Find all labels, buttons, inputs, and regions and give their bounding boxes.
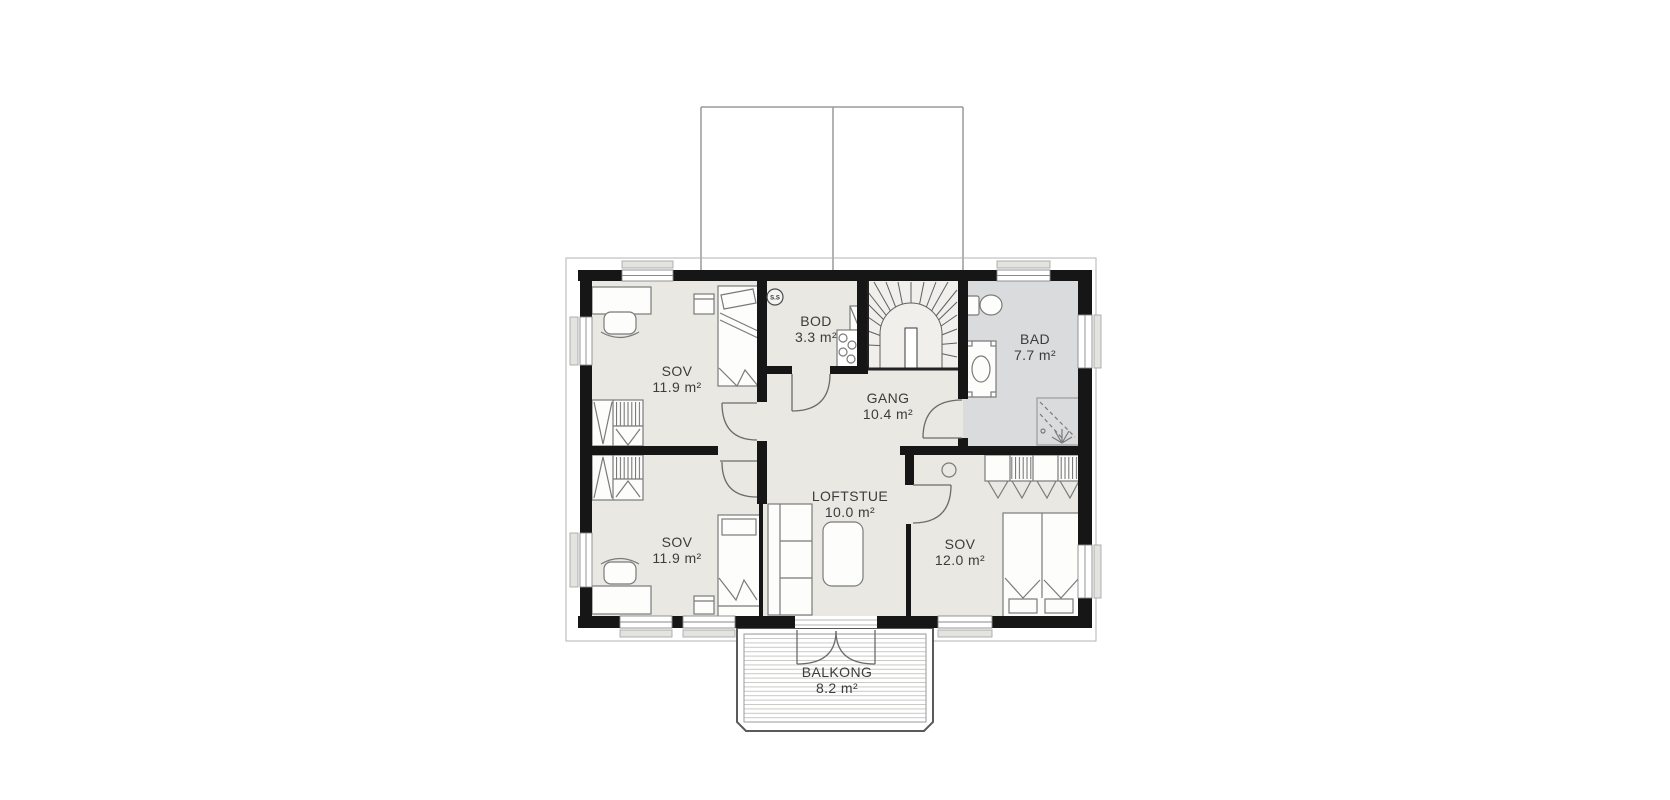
detector-label: S.S: [770, 296, 780, 302]
svg-text:SOV: SOV: [662, 534, 693, 550]
svg-text:LOFTSTUE: LOFTSTUE: [812, 488, 888, 504]
svg-text:BAD: BAD: [1020, 331, 1050, 347]
bed-double: [1003, 513, 1082, 617]
svg-text:11.9 m²: 11.9 m²: [652, 379, 701, 395]
label-bad: BAD 7.7 m²: [1014, 331, 1056, 363]
svg-text:11.9 m²: 11.9 m²: [652, 550, 701, 566]
nightstand: [694, 596, 714, 614]
toilet: [966, 295, 1002, 315]
coffee-table: [823, 522, 863, 586]
wardrobe: [592, 455, 643, 500]
sink-vanity: [967, 341, 996, 397]
svg-text:3.3 m²: 3.3 m²: [795, 329, 837, 345]
svg-text:10.0 m²: 10.0 m²: [825, 504, 875, 520]
label-gang: GANG 10.4 m²: [863, 390, 913, 422]
svg-text:12.0 m²: 12.0 m²: [935, 552, 985, 568]
label-bod: BOD 3.3 m²: [795, 313, 837, 345]
shelf-unit: [837, 330, 859, 367]
svg-text:SOV: SOV: [945, 536, 976, 552]
floorplan-page: S.S SOV 11.9 m² BOD 3.3 m² GANG 10.4 m² …: [0, 0, 1670, 800]
svg-text:BOD: BOD: [800, 313, 832, 329]
floorplan-drawing: S.S SOV 11.9 m² BOD 3.3 m² GANG 10.4 m² …: [0, 0, 1670, 800]
bed-single: [718, 286, 760, 386]
nightstand: [694, 294, 714, 314]
svg-text:10.4 m²: 10.4 m²: [863, 406, 913, 422]
svg-text:7.7 m²: 7.7 m²: [1014, 347, 1056, 363]
balcony-door-threshold: [795, 616, 877, 628]
bed-single: [718, 515, 760, 617]
detector-icon: S.S: [767, 289, 783, 305]
sofa: [768, 504, 812, 615]
svg-text:8.2 m²: 8.2 m²: [816, 680, 858, 696]
wardrobe: [592, 400, 643, 446]
svg-text:SOV: SOV: [662, 363, 693, 379]
svg-text:BALKONG: BALKONG: [802, 664, 873, 680]
roof-dormer-outline: [701, 107, 963, 270]
svg-text:GANG: GANG: [867, 390, 910, 406]
